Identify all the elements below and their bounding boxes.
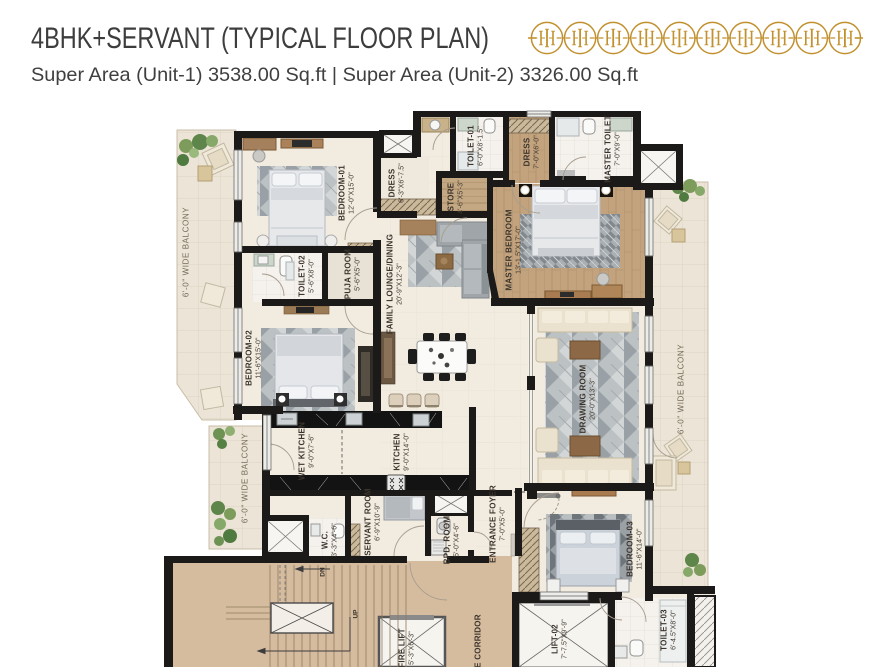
svg-text:7'-0"X9'-0": 7'-0"X9'-0" <box>615 132 622 166</box>
svg-text:ENTRANCE FOYER: ENTRANCE FOYER <box>489 485 498 563</box>
svg-text:12'-0"X15'-0": 12'-0"X15'-0" <box>349 172 356 214</box>
svg-text:13'-1.5"X17'-0": 13'-1.5"X17'-0" <box>516 226 523 274</box>
svg-text:FAMILY LOUNGE/DINING: FAMILY LOUNGE/DINING <box>386 234 395 334</box>
svg-text:6'-0" WIDE BALCONY: 6'-0" WIDE BALCONY <box>182 207 191 297</box>
svg-text:E CORRIDOR: E CORRIDOR <box>474 614 483 667</box>
svg-text:6'-0"X8'-1.5": 6'-0"X8'-1.5" <box>478 126 485 166</box>
svg-text:FIRE LIFT: FIRE LIFT <box>398 628 407 667</box>
svg-text:DN: DN <box>320 567 327 577</box>
svg-text:TOILET-02: TOILET-02 <box>298 255 307 297</box>
svg-text:11'-6"X15'-0": 11'-6"X15'-0" <box>256 337 263 379</box>
svg-text:DRAWING ROOM: DRAWING ROOM <box>579 365 588 434</box>
svg-text:6'-9"X10'-9": 6'-9"X10'-9" <box>375 503 382 541</box>
svg-text:5'-6"X5'-0": 5'-6"X5'-0" <box>355 257 362 291</box>
svg-text:MASTER TOILET: MASTER TOILET <box>604 115 613 183</box>
svg-text:6'-4.5"X8'-0": 6'-4.5"X8'-0" <box>671 610 678 650</box>
svg-text:11'-6"X14'-0": 11'-6"X14'-0" <box>637 528 644 570</box>
svg-text:WET KITCHEN: WET KITCHEN <box>298 422 307 480</box>
svg-text:UP: UP <box>353 609 360 619</box>
svg-text:TOILET-01: TOILET-01 <box>467 125 476 167</box>
svg-text:BEDROOM-01: BEDROOM-01 <box>338 165 347 221</box>
svg-text:LIFT-02: LIFT-02 <box>551 624 560 654</box>
svg-text:BPD, ROOM: BPD, ROOM <box>443 516 452 565</box>
svg-text:5'-3"X6'-3": 5'-3"X6'-3" <box>409 631 416 665</box>
svg-text:20'-9"X12'-3": 20'-9"X12'-3" <box>397 263 404 305</box>
svg-text:6'-3"X6'-7.5": 6'-3"X6'-7.5" <box>399 163 406 203</box>
svg-text:W.C.: W.C. <box>321 531 330 549</box>
svg-text:KITCHEN: KITCHEN <box>393 433 402 470</box>
svg-text:Super Area (Unit-1) 3538.00 Sq: Super Area (Unit-1) 3538.00 Sq.ft | Supe… <box>31 64 639 86</box>
svg-text:7'-0"X6'-0": 7'-0"X6'-0" <box>534 135 541 169</box>
svg-text:BEDROOM-02: BEDROOM-02 <box>245 330 254 386</box>
svg-text:4'-6"X5'-3": 4'-6"X5'-3" <box>458 180 465 214</box>
svg-text:7'-7.5"X9'-9": 7'-7.5"X9'-9" <box>562 619 569 659</box>
svg-text:9'-0"X7'-6": 9'-0"X7'-6" <box>309 434 316 468</box>
svg-text:SERVANT ROOM: SERVANT ROOM <box>364 488 373 556</box>
svg-text:9'-0"X14'-0": 9'-0"X14'-0" <box>404 433 411 471</box>
svg-text:PUJA ROOM: PUJA ROOM <box>344 249 353 299</box>
svg-text:MASTER BEDROOM: MASTER BEDROOM <box>505 209 514 290</box>
svg-text:DRESS: DRESS <box>388 168 397 197</box>
svg-text:STORE: STORE <box>447 182 456 211</box>
svg-text:4BHK+SERVANT (TYPICAL FLOOR PL: 4BHK+SERVANT (TYPICAL FLOOR PLAN) <box>31 22 489 55</box>
svg-text:3'-3"X4'-6": 3'-3"X4'-6" <box>332 523 339 557</box>
svg-text:BEDROOM-03: BEDROOM-03 <box>626 521 635 577</box>
svg-text:20'-0"X13'-3": 20'-0"X13'-3" <box>590 378 597 420</box>
svg-text:5'-6"X8'-0": 5'-6"X8'-0" <box>309 259 316 293</box>
svg-text:TOILET-03: TOILET-03 <box>660 609 669 651</box>
svg-text:7'-0"X5'-0": 7'-0"X5'-0" <box>500 507 507 541</box>
svg-text:DRESS: DRESS <box>523 137 532 166</box>
svg-text:6'-0" WIDE BALCONY: 6'-0" WIDE BALCONY <box>677 344 686 434</box>
svg-text:6'-0" WIDE BALCONY: 6'-0" WIDE BALCONY <box>241 433 250 523</box>
svg-text:5'-0"X4'-6": 5'-0"X4'-6" <box>454 523 461 557</box>
